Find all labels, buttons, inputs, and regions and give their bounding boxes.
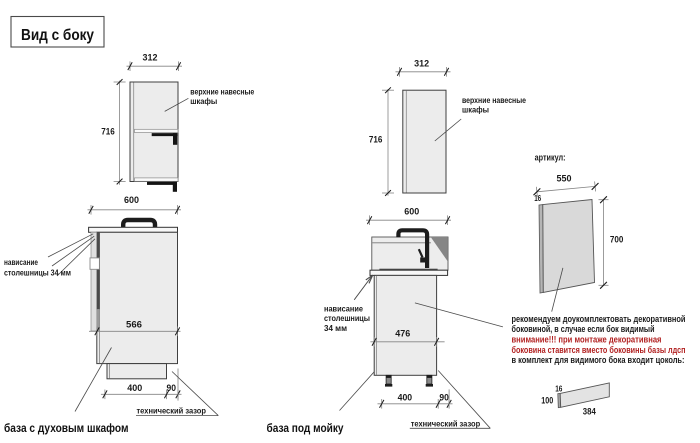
svg-text:16: 16: [534, 194, 541, 203]
svg-text:600: 600: [124, 195, 139, 206]
svg-text:600: 600: [404, 206, 419, 217]
svg-text:боковина ставится вместо боков: боковина ставится вместо боковины базы л…: [512, 345, 686, 355]
svg-text:верхние навесные: верхние навесные: [190, 88, 254, 97]
svg-text:шкафы: шкафы: [190, 97, 217, 106]
svg-text:550: 550: [557, 174, 572, 185]
svg-text:Вид с боку: Вид с боку: [21, 27, 94, 44]
svg-text:столешницы 34 мм: столешницы 34 мм: [4, 268, 71, 277]
svg-text:база с духовым шкафом: база с духовым шкафом: [4, 422, 129, 435]
svg-text:34 мм: 34 мм: [324, 324, 347, 333]
svg-text:технический зазор: технический зазор: [137, 406, 207, 416]
svg-text:артикул:: артикул:: [535, 152, 566, 162]
svg-text:700: 700: [610, 234, 624, 245]
svg-text:шкафы: шкафы: [462, 105, 489, 114]
svg-text:технический зазор: технический зазор: [411, 418, 481, 428]
svg-text:верхние навесные: верхние навесные: [462, 96, 526, 105]
svg-text:16: 16: [555, 384, 562, 394]
svg-text:716: 716: [369, 134, 383, 145]
svg-text:внимание!!! при монтаже декора: внимание!!! при монтаже декоративная: [512, 335, 662, 345]
svg-text:384: 384: [583, 406, 597, 416]
svg-text:рекомендуем доукомплектовать д: рекомендуем доукомплектовать декоративно…: [512, 314, 686, 324]
svg-text:476: 476: [395, 328, 410, 339]
svg-text:нависание: нависание: [324, 305, 363, 314]
svg-text:100: 100: [541, 396, 553, 406]
svg-text:400: 400: [398, 392, 413, 403]
svg-text:566: 566: [126, 319, 142, 330]
svg-text:нависание: нависание: [4, 258, 38, 267]
svg-text:в комплект для видимого бока в: в комплект для видимого бока входит цоко…: [512, 355, 685, 365]
svg-text:312: 312: [414, 58, 429, 69]
svg-text:база под мойку: база под мойку: [267, 422, 344, 435]
svg-text:боковиной, в случае если бок в: боковиной, в случае если бок видимый: [512, 324, 655, 334]
svg-text:312: 312: [143, 53, 158, 64]
svg-text:90: 90: [439, 392, 449, 403]
svg-text:столешницы: столешницы: [324, 314, 370, 323]
svg-text:400: 400: [127, 383, 142, 394]
svg-text:90: 90: [167, 383, 177, 394]
svg-text:716: 716: [101, 127, 115, 138]
